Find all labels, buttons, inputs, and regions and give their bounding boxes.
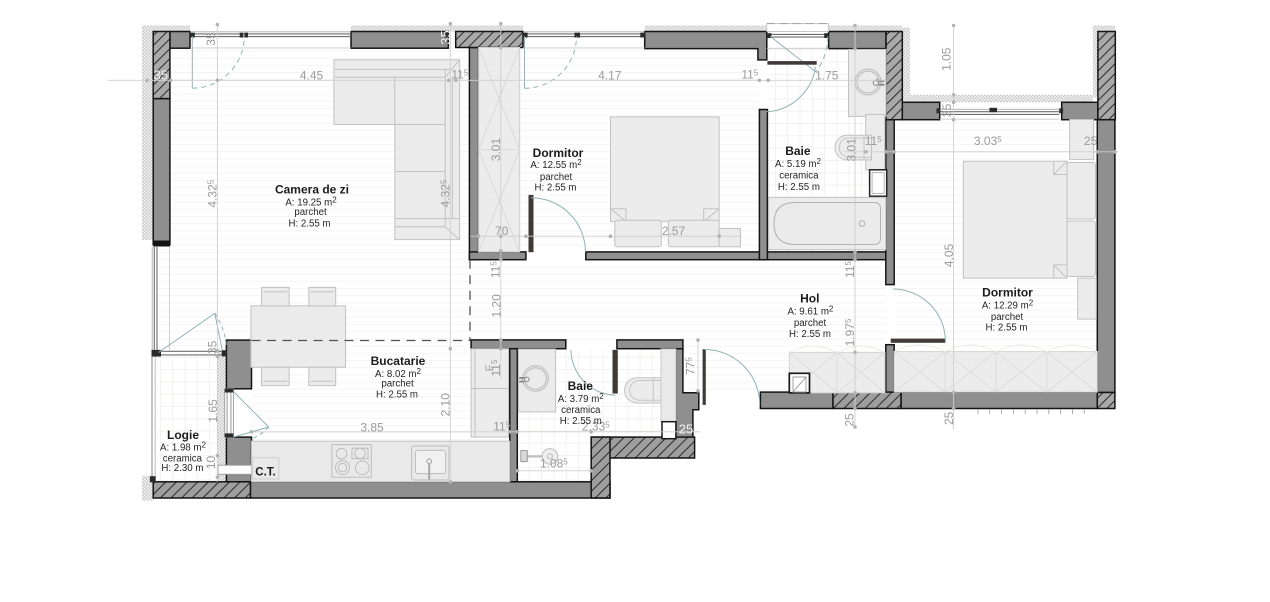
svg-text:H: 2.55 m: H: 2.55 m xyxy=(535,183,577,194)
svg-text:parchet: parchet xyxy=(540,172,573,183)
svg-text:H: 2.55 m: H: 2.55 m xyxy=(986,323,1028,334)
svg-text:35: 35 xyxy=(206,340,220,354)
svg-text:Bucatarie: Bucatarie xyxy=(371,354,426,368)
svg-text:A: 5.19 m2: A: 5.19 m2 xyxy=(775,157,821,170)
svg-text:ceramica: ceramica xyxy=(561,405,601,416)
svg-text:35: 35 xyxy=(438,30,453,44)
svg-text:25: 25 xyxy=(843,413,857,427)
svg-text:25: 25 xyxy=(679,422,693,437)
svg-text:2.10: 2.10 xyxy=(439,393,453,417)
svg-text:Dormitor: Dormitor xyxy=(533,146,584,160)
svg-text:Camera de zi: Camera de zi xyxy=(275,183,349,197)
svg-text:parchet: parchet xyxy=(381,379,414,390)
svg-text:A: 9.61 m2: A: 9.61 m2 xyxy=(787,305,833,318)
svg-text:4.45: 4.45 xyxy=(300,69,324,83)
svg-text:parchet: parchet xyxy=(794,318,827,329)
svg-text:C.T.: C.T. xyxy=(255,467,275,479)
svg-text:35: 35 xyxy=(940,103,954,117)
svg-text:10: 10 xyxy=(204,456,218,470)
svg-text:Baie: Baie xyxy=(568,379,594,393)
svg-text:Dormitor: Dormitor xyxy=(982,286,1033,300)
svg-text:H: 2.55 m: H: 2.55 m xyxy=(376,390,418,401)
svg-text:H: 2.55 m: H: 2.55 m xyxy=(289,219,331,230)
svg-text:A: 12.29 m2: A: 12.29 m2 xyxy=(982,299,1034,312)
svg-text:1.65: 1.65 xyxy=(206,399,220,423)
svg-text:H: 2.55 m: H: 2.55 m xyxy=(778,182,820,193)
svg-text:H: 2.55 m: H: 2.55 m xyxy=(789,329,831,340)
svg-text:35: 35 xyxy=(204,32,218,46)
svg-text:1.05: 1.05 xyxy=(940,47,954,71)
svg-text:25: 25 xyxy=(1084,134,1098,148)
svg-text:H: 2.30 m: H: 2.30 m xyxy=(161,463,203,474)
svg-text:1.20: 1.20 xyxy=(489,294,503,318)
svg-text:Baie: Baie xyxy=(785,144,811,158)
svg-text:Logie: Logie xyxy=(167,428,199,442)
svg-text:25: 25 xyxy=(942,411,956,425)
svg-text:3.01: 3.01 xyxy=(489,138,503,162)
svg-text:70: 70 xyxy=(495,224,509,238)
svg-text:3.01: 3.01 xyxy=(845,138,859,162)
svg-text:2.57: 2.57 xyxy=(662,224,686,238)
svg-text:3.85: 3.85 xyxy=(360,420,384,434)
svg-text:H: 2.55 m: H: 2.55 m xyxy=(560,416,602,427)
svg-text:35: 35 xyxy=(154,68,168,83)
svg-text:A: 1.98 m2: A: 1.98 m2 xyxy=(160,441,206,454)
svg-text:ceramica: ceramica xyxy=(779,171,819,182)
svg-text:parchet: parchet xyxy=(294,207,327,218)
svg-text:1.75: 1.75 xyxy=(815,69,839,83)
svg-text:Hol: Hol xyxy=(800,292,819,306)
svg-text:parchet: parchet xyxy=(991,312,1024,323)
svg-text:A: 12.55 m2: A: 12.55 m2 xyxy=(530,158,582,171)
svg-text:A: 3.79 m2: A: 3.79 m2 xyxy=(558,392,604,405)
svg-text:4.05: 4.05 xyxy=(942,243,956,267)
svg-text:4.17: 4.17 xyxy=(598,69,622,83)
